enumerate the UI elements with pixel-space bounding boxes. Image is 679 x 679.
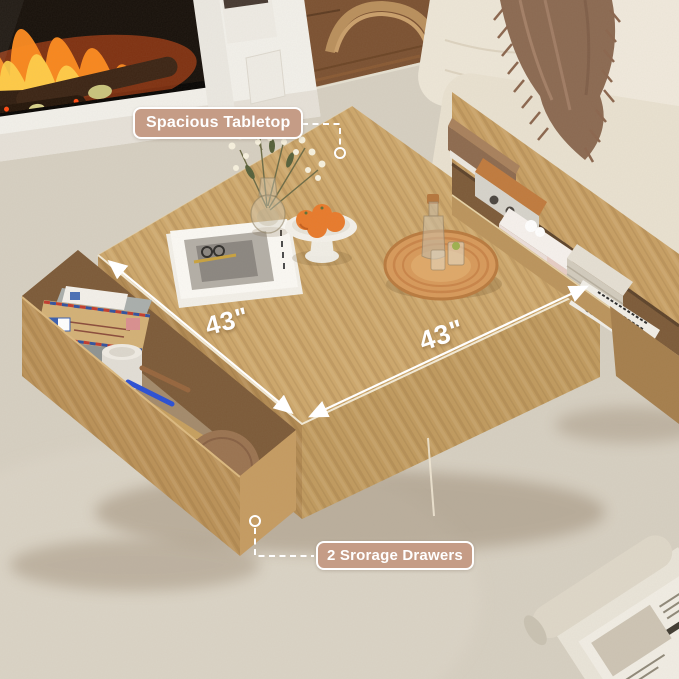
tabletop-callout-label: Spacious Tabletop bbox=[133, 107, 303, 139]
product-photo-scene: FIELD NOTES bbox=[0, 0, 679, 679]
drawers-callout-label: 2 Srorage Drawers bbox=[316, 541, 474, 570]
photo-grain bbox=[0, 0, 679, 679]
scene-svg: FIELD NOTES bbox=[0, 0, 679, 679]
